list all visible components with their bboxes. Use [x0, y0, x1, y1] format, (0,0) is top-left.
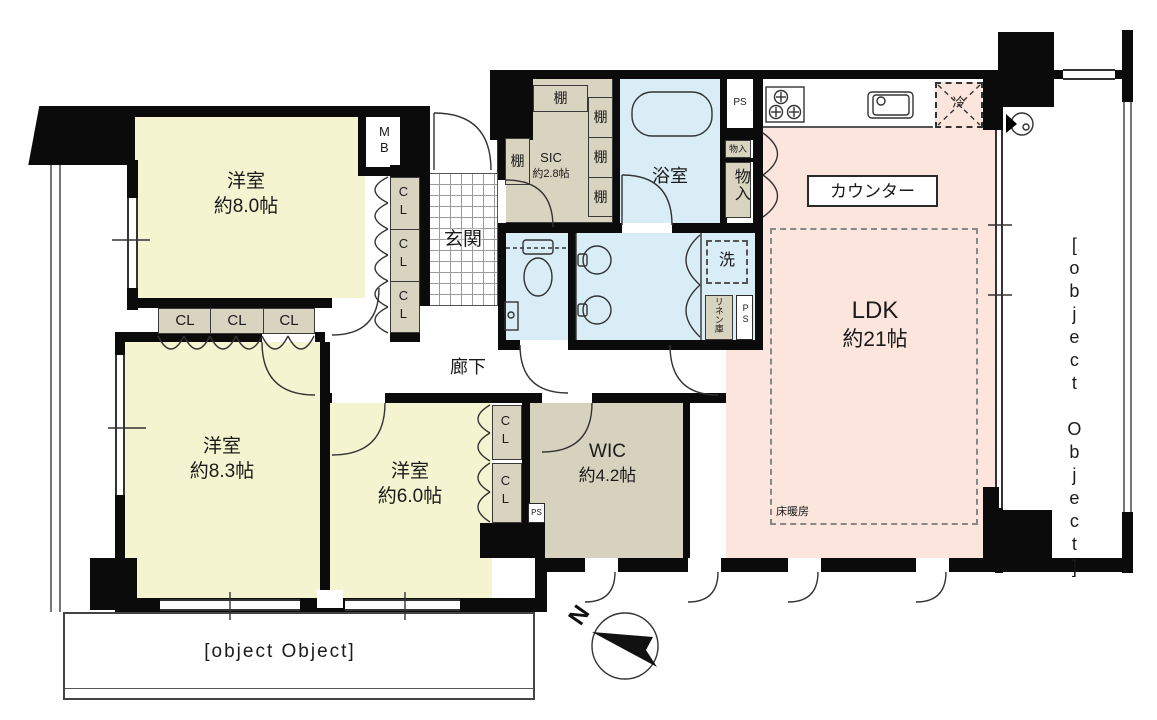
window-ticks [108, 225, 1012, 620]
closet-doors-horizontal [158, 336, 314, 349]
stove-icon [766, 87, 804, 122]
storage-doors-ldk [763, 133, 778, 217]
door-arc-toilet [520, 345, 568, 393]
washer-nook-doors [686, 233, 701, 340]
closet-doors-vertical [375, 177, 388, 333]
door-arc-room80 [332, 288, 379, 335]
floor-plan: CL CL CL CL CL CL CL CL MB PS 物入 物入 棚 棚 … [0, 0, 1157, 720]
compass-icon: N [563, 600, 658, 679]
kitchen-sink-icon [868, 92, 913, 118]
bathtub-icon [632, 92, 712, 136]
plan-symbols: N [0, 0, 1157, 720]
door-arc-ldk [670, 345, 718, 395]
window-arcs-south [585, 572, 946, 602]
toilet-icon [505, 240, 566, 330]
door-arc-wic [542, 403, 592, 452]
door-arc-bath [622, 175, 672, 225]
door-arc-room83 [262, 342, 315, 395]
compass-north-label: N [563, 600, 595, 630]
closet-doors-60 [478, 405, 490, 522]
door-arc-entrance [434, 113, 491, 170]
sink-icon [576, 233, 611, 340]
door-arc-room60 [332, 403, 385, 455]
door-arc-sic [506, 180, 553, 227]
balcony-faucet-icon [1006, 113, 1033, 135]
fridge-x-icon [938, 85, 980, 125]
